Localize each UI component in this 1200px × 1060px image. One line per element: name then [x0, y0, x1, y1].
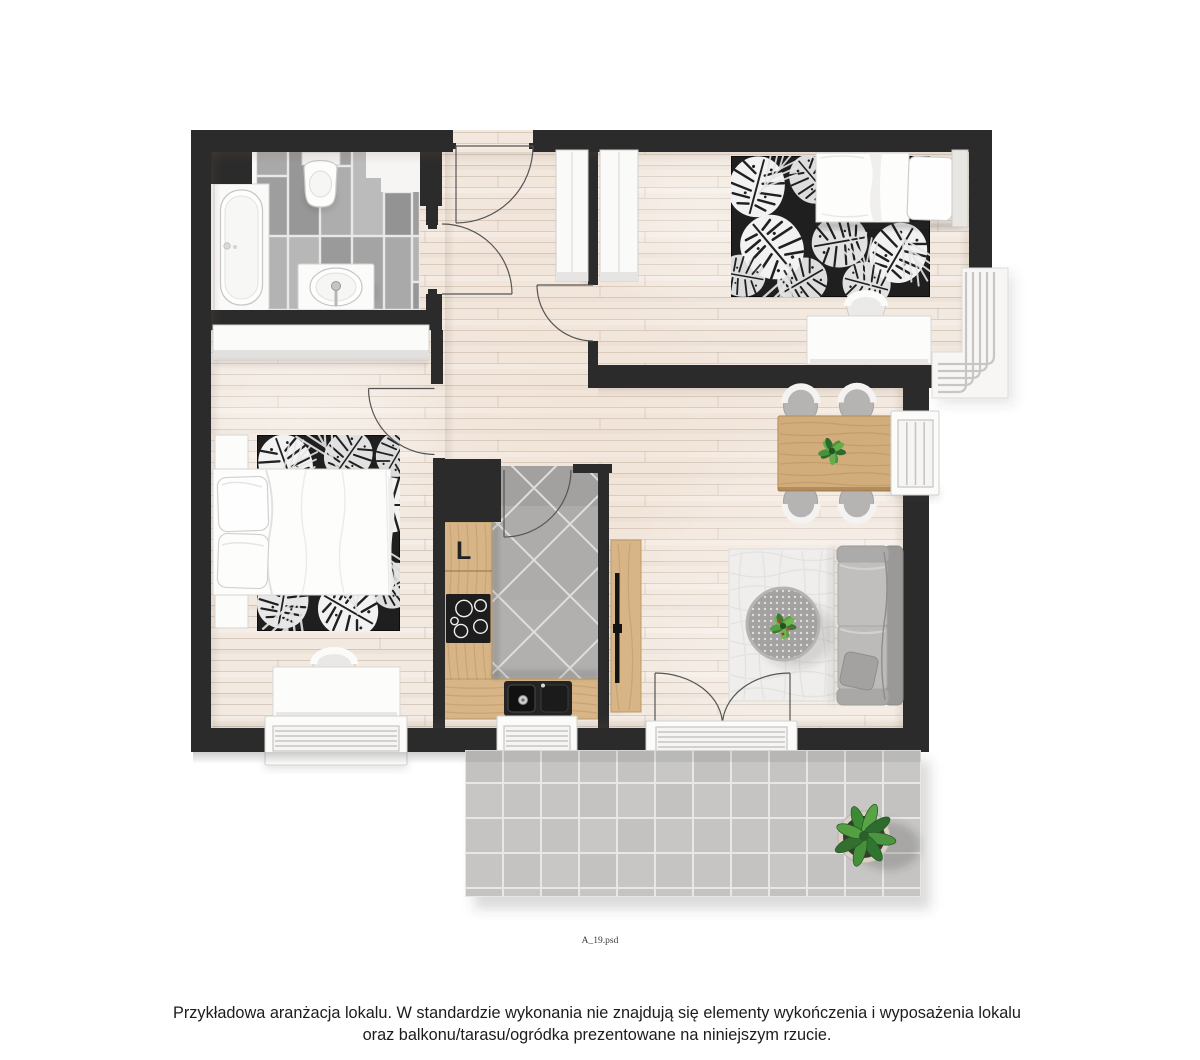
svg-text:A_19.psd: A_19.psd [582, 936, 619, 946]
svg-text:oraz balkonu/tarasu/ogródka pr: oraz balkonu/tarasu/ogródka prezentowane… [363, 1026, 832, 1044]
svg-text:Przykładowa aranżacja lokalu.: Przykładowa aranżacja lokalu. W standard… [173, 1004, 1021, 1022]
svg-text:L: L [456, 537, 471, 565]
